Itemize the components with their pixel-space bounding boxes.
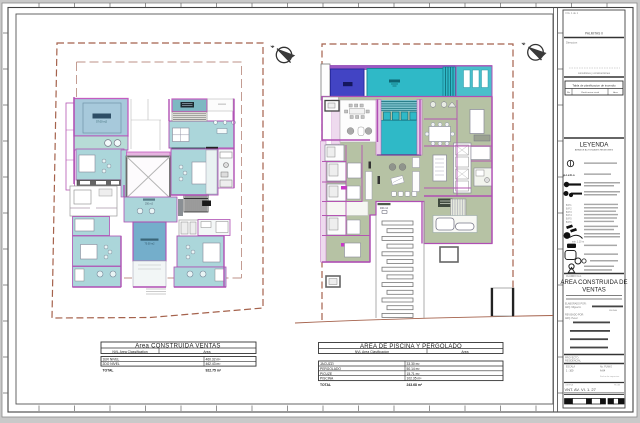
svg-text:1ER NIVEL: 1ER NIVEL bbox=[103, 357, 120, 361]
svg-text:RESIDENCIAL: RESIDENCIAL bbox=[565, 360, 582, 363]
svg-text:ESCALA: ESCALA bbox=[566, 366, 576, 369]
svg-text:A-04: A-04 bbox=[600, 370, 606, 373]
svg-text:consultores y construcciones: consultores y construcciones bbox=[578, 72, 611, 75]
svg-text:33.30 m²: 33.30 m² bbox=[407, 362, 421, 366]
svg-text:Clasificacion inicial: Clasificacion inicial bbox=[581, 92, 600, 94]
svg-text:15.71 m²: 15.71 m² bbox=[407, 372, 421, 376]
svg-text:HOJA: HOJA bbox=[614, 384, 620, 387]
svg-text:50.14 m²: 50.14 m² bbox=[407, 367, 421, 371]
svg-text:Direccion: Direccion bbox=[566, 41, 578, 45]
svg-text:2DO NIVEL: 2DO NIVEL bbox=[103, 362, 120, 366]
svg-text:FECHA: FECHA bbox=[609, 309, 617, 312]
svg-text:LEYENDA: LEYENDA bbox=[580, 142, 610, 149]
svg-text:AREA CONSTRUIDA DE: AREA CONSTRUIDA DE bbox=[560, 280, 627, 286]
svg-text:Area: Area bbox=[461, 350, 468, 354]
svg-text:Fecha de impresion: Fecha de impresion bbox=[600, 375, 620, 378]
svg-text:Tabla de planificacion de ince: Tabla de planificacion de incendio bbox=[572, 84, 616, 88]
svg-text:Area: Area bbox=[203, 350, 210, 354]
svg-text:250 m2: 250 m2 bbox=[145, 203, 154, 206]
svg-text:243.68 m²: 243.68 m² bbox=[407, 383, 423, 387]
svg-text:PERGOLADO: PERGOLADO bbox=[320, 367, 341, 371]
svg-text:No. PLANO: No. PLANO bbox=[600, 366, 612, 369]
svg-text:CUADRO No.1: CUADRO No.1 bbox=[566, 275, 582, 278]
svg-text:NVL Area Clasificacion: NVL Area Clasificacion bbox=[355, 350, 389, 354]
svg-text:TOTAL: TOTAL bbox=[103, 368, 114, 372]
svg-text:p.i.c.h.s: p.i.c.h.s bbox=[564, 173, 576, 177]
svg-text:ARQ. Perez: ARQ. Perez bbox=[565, 317, 579, 320]
svg-text:Area: Area bbox=[613, 91, 618, 94]
svg-text:1 : 100: 1 : 100 bbox=[566, 370, 574, 373]
svg-text:JACUZZI: JACUZZI bbox=[320, 362, 334, 366]
svg-text:ARQ. Miguel A.: ARQ. Miguel A. bbox=[565, 306, 582, 309]
svg-text:922.75 m²: 922.75 m² bbox=[206, 368, 222, 372]
svg-text:460.32 m²: 460.32 m² bbox=[206, 357, 222, 361]
svg-text:min. 1.10 m: min. 1.10 m bbox=[572, 242, 584, 244]
svg-text:102.35 m²: 102.35 m² bbox=[407, 377, 423, 381]
svg-text:460 m2: 460 m2 bbox=[380, 207, 389, 210]
svg-text:57.00 m2: 57.00 m2 bbox=[96, 120, 107, 124]
svg-text:Area CONSTRUIDA VENTAS: Area CONSTRUIDA VENTAS bbox=[135, 343, 221, 349]
svg-text:PICUZE: PICUZE bbox=[320, 372, 333, 376]
svg-text:VENTAS: VENTAS bbox=[582, 288, 606, 294]
svg-text:VNT. AV. VI. 1. 27: VNT. AV. VI. 1. 27 bbox=[565, 387, 597, 392]
svg-text:TOTAL: TOTAL bbox=[320, 383, 331, 387]
svg-text:PISCINA: PISCINA bbox=[320, 377, 334, 381]
svg-text:AREA DE ACTIVIDADES REUNIONES: AREA DE ACTIVIDADES REUNIONES bbox=[575, 149, 614, 152]
svg-text:PALMITAS II: PALMITAS II bbox=[585, 32, 603, 36]
svg-text:462.43 m²: 462.43 m² bbox=[206, 362, 222, 366]
svg-text:70.00 m2: 70.00 m2 bbox=[145, 243, 156, 246]
svg-text:FIG. 1 de 1: FIG. 1 de 1 bbox=[566, 12, 579, 15]
svg-text:B.P.6: B.P.6 bbox=[566, 221, 572, 224]
svg-text:NVL Area Classification: NVL Area Classification bbox=[112, 350, 147, 354]
